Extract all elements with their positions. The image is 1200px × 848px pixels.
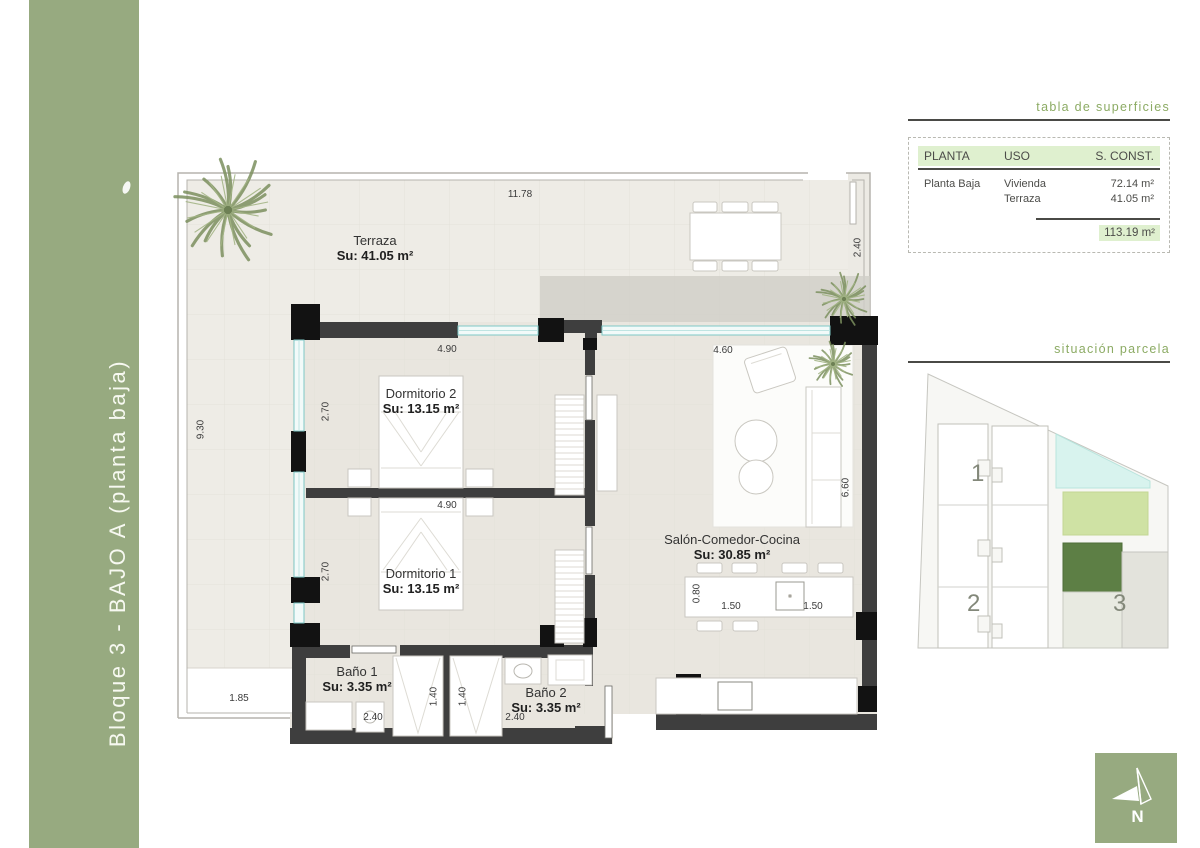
terrace-table xyxy=(690,202,781,271)
total-value: 113.19 m² xyxy=(1099,225,1160,241)
building-row-middle xyxy=(992,426,1048,648)
dim-dorm2-left: 2.70 xyxy=(321,399,332,425)
banner-logo-mark xyxy=(121,180,132,195)
sofa xyxy=(806,387,841,527)
site-block-1: 1 xyxy=(971,460,984,488)
table-row: Planta Baja Vivienda 72.14 m² xyxy=(918,177,1160,192)
surfaces-panel-title: tabla de superficies xyxy=(908,100,1170,114)
label-dormitorio2: Dormitorio 2Su: 13.15 m² xyxy=(383,386,460,416)
kitchen-counter xyxy=(656,678,857,714)
site-plan-map xyxy=(905,366,1173,656)
dim-island-right: 1.50 xyxy=(798,601,828,612)
surfaces-table-header: PLANTA USO S. CONST. xyxy=(918,146,1160,166)
table-row: Terraza 41.05 m² xyxy=(918,192,1160,207)
surfaces-table: PLANTA USO S. CONST. Planta Baja Viviend… xyxy=(908,137,1170,253)
dim-dorm2-top: 4.90 xyxy=(432,344,462,355)
col-planta: PLANTA xyxy=(924,149,1004,163)
wardrobe-dorm2 xyxy=(555,395,584,495)
site-panel: situación parcela xyxy=(908,342,1170,363)
cell-uso: Terraza xyxy=(1004,193,1076,205)
total-rule xyxy=(1036,218,1160,220)
north-label: N xyxy=(1095,807,1181,827)
lawn xyxy=(1063,492,1148,535)
dim-salon-top: 4.60 xyxy=(708,345,738,356)
site-block-3: 3 xyxy=(1113,590,1126,618)
site-panel-rule xyxy=(908,361,1170,363)
surfaces-panel: tabla de superficies PLANTA USO S. CONST… xyxy=(908,100,1170,253)
bath2-fixtures xyxy=(505,655,592,685)
label-bano1: Baño 1Su: 3.35 m² xyxy=(322,664,391,694)
dim-closet2: 1.40 xyxy=(458,684,469,710)
compass-icon xyxy=(1095,753,1177,843)
label-dormitorio1: Dormitorio 1Su: 13.15 m² xyxy=(383,566,460,596)
surfaces-panel-rule xyxy=(908,119,1170,121)
header-rule xyxy=(918,168,1160,170)
cell-planta: Planta Baja xyxy=(924,178,1004,190)
pool xyxy=(1056,434,1150,488)
dim-dorm1-top: 4.90 xyxy=(432,500,462,511)
dim-terrace-right: 2.40 xyxy=(853,235,864,261)
label-terraza: TerrazaSu: 41.05 m² xyxy=(337,233,414,263)
label-salon: Salón-Comedor-CocinaSu: 30.85 m² xyxy=(664,532,800,562)
dim-salon-right: 6.60 xyxy=(841,475,852,501)
north-arrow: N xyxy=(1095,753,1177,843)
dim-island-depth: 0.80 xyxy=(692,581,703,607)
dim-terrace-bottom: 1.85 xyxy=(224,693,254,704)
cell-sconst: 72.14 m² xyxy=(1076,178,1154,190)
cell-uso: Vivienda xyxy=(1004,178,1076,190)
site-panel-title: situación parcela xyxy=(908,342,1170,356)
dim-terrace-top: 11.78 xyxy=(505,189,535,200)
pergola-shadow xyxy=(540,276,870,322)
side-table-small xyxy=(739,460,773,494)
dim-closet1: 1.40 xyxy=(429,684,440,710)
building-row-left xyxy=(938,424,990,648)
total-row: 113.19 m² xyxy=(918,225,1160,241)
col-sconst: S. CONST. xyxy=(1076,149,1154,163)
building-gray-right xyxy=(1122,552,1168,648)
dim-bath1-width: 2.40 xyxy=(358,712,388,723)
dim-terrace-left: 9.30 xyxy=(196,417,207,443)
plan-title: Bloque 3 - BAJO A (planta baja) xyxy=(105,359,131,747)
cell-sconst: 41.05 m² xyxy=(1076,193,1154,205)
cell-planta xyxy=(924,193,1004,205)
dim-island-left: 1.50 xyxy=(716,601,746,612)
selected-block xyxy=(1063,543,1122,592)
side-table-large xyxy=(735,420,777,462)
label-bano2: Baño 2Su: 3.35 m² xyxy=(511,685,580,715)
dim-bath2-width: 2.40 xyxy=(500,712,530,723)
dim-dorm1-left: 2.70 xyxy=(321,559,332,585)
floor-plan xyxy=(150,150,910,770)
col-uso: USO xyxy=(1004,149,1076,163)
hall-shelf xyxy=(597,395,617,491)
site-block-2: 2 xyxy=(967,590,980,618)
wardrobe-dorm1 xyxy=(555,550,584,643)
